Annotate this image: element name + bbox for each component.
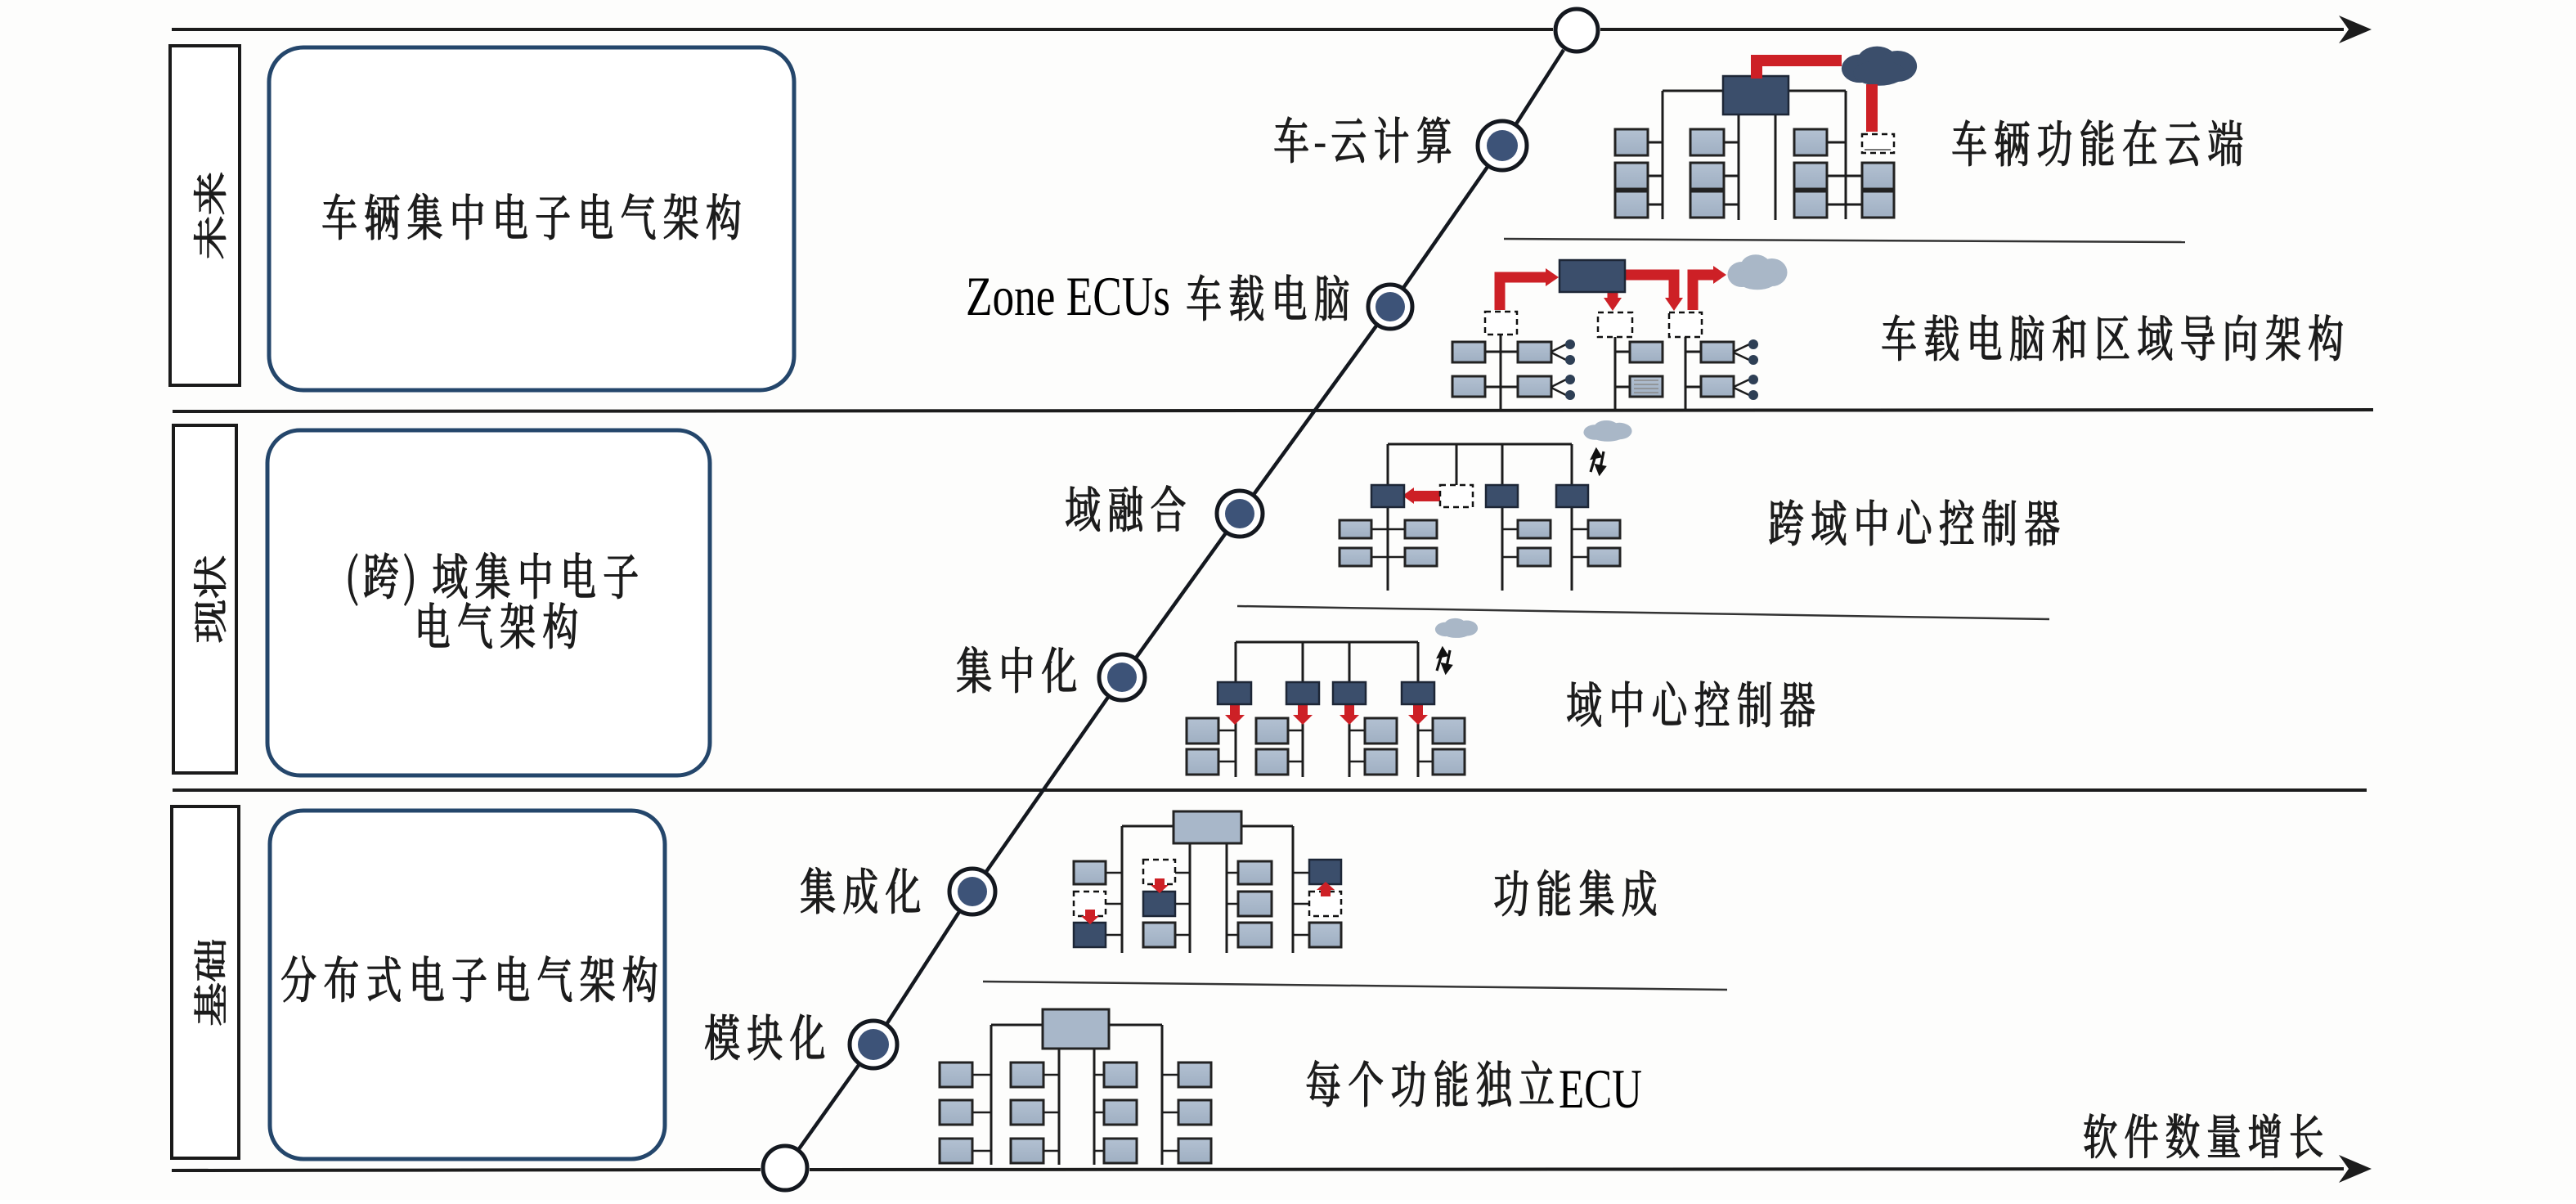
svg-text:Zone ECUs: Zone ECUs [966, 265, 1170, 327]
svg-text:ECU: ECU [1559, 1058, 1642, 1120]
